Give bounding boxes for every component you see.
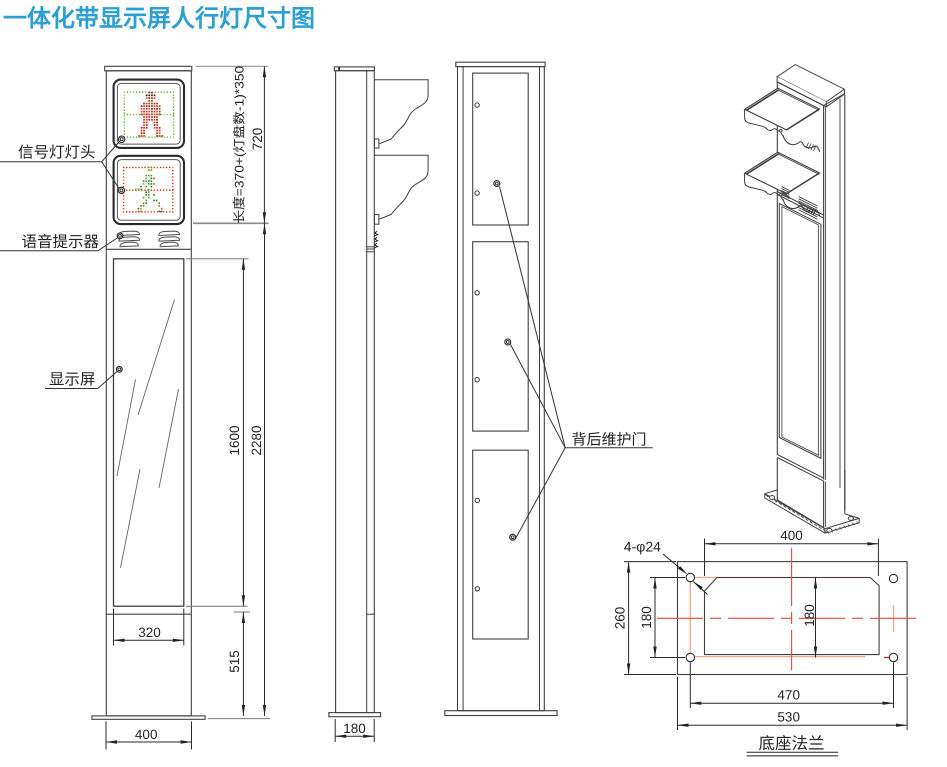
- svg-text:320: 320: [138, 625, 161, 640]
- svg-text:4-φ24: 4-φ24: [624, 539, 661, 555]
- svg-text:显示屏: 显示屏: [49, 371, 96, 388]
- svg-text:720: 720: [250, 128, 265, 151]
- svg-text:530: 530: [777, 710, 800, 725]
- svg-text:语音提示器: 语音提示器: [22, 233, 100, 251]
- svg-text:180: 180: [639, 606, 654, 629]
- svg-text:长度=370+(灯盘数-1)*350: 长度=370+(灯盘数-1)*350: [233, 66, 247, 224]
- svg-text:400: 400: [780, 528, 803, 543]
- svg-text:背后维护门: 背后维护门: [572, 431, 647, 448]
- svg-text:515: 515: [227, 650, 242, 673]
- svg-text:470: 470: [777, 688, 800, 703]
- svg-text:180: 180: [343, 721, 366, 736]
- svg-text:底座法兰: 底座法兰: [759, 735, 825, 753]
- svg-text:1600: 1600: [227, 425, 242, 455]
- svg-text:信号灯灯头: 信号灯灯头: [18, 144, 96, 162]
- svg-text:180: 180: [802, 604, 817, 627]
- svg-text:2280: 2280: [249, 425, 264, 455]
- svg-text:一体化带显示屏人行灯尺寸图: 一体化带显示屏人行灯尺寸图: [3, 6, 315, 33]
- svg-text:400: 400: [135, 727, 158, 742]
- svg-text:260: 260: [613, 607, 628, 630]
